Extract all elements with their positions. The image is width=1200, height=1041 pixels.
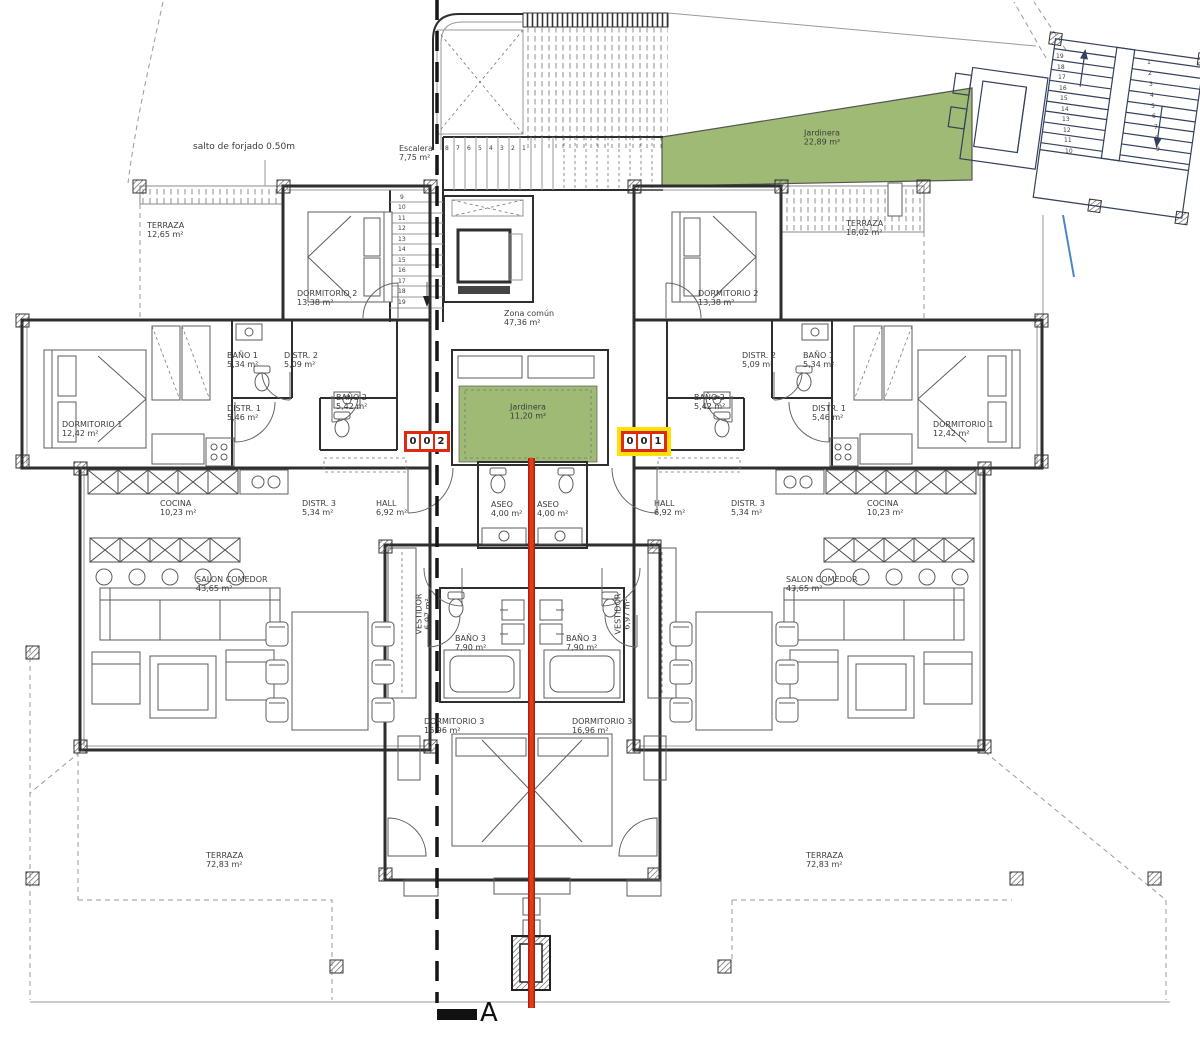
- unit-badge-digit: 0: [638, 434, 652, 449]
- unit-badge-digit: 2: [435, 434, 447, 449]
- site-boundary-lines: [30, 2, 1170, 1002]
- jardinera-roof-area: [662, 88, 972, 186]
- unit-badge-002: 0 0 2: [404, 431, 450, 452]
- floorplan-canvas: salto de forjado 0.50mTERRAZA 12,65 m²Es…: [0, 0, 1200, 1041]
- unit-badge-digit: 0: [421, 434, 435, 449]
- unit-badge-digit: 1: [652, 434, 664, 449]
- floorplan-drawing: [0, 0, 1200, 1041]
- unit-badge-001: 0 0 1: [621, 431, 667, 452]
- unit-badge-digit: 0: [624, 434, 638, 449]
- rotated-stair-block: [939, 20, 1200, 225]
- section-marker-bar: [437, 1009, 477, 1020]
- central-elevator: [444, 196, 533, 302]
- jardinera-patio-area: [459, 386, 597, 462]
- unit-badge-digit: 0: [407, 434, 421, 449]
- kitchen-left: [88, 470, 288, 585]
- kitchen-right: [776, 470, 976, 585]
- section-lines: [437, 0, 532, 1020]
- blue-reference-line: [1063, 215, 1074, 277]
- structural-columns: [16, 180, 1161, 973]
